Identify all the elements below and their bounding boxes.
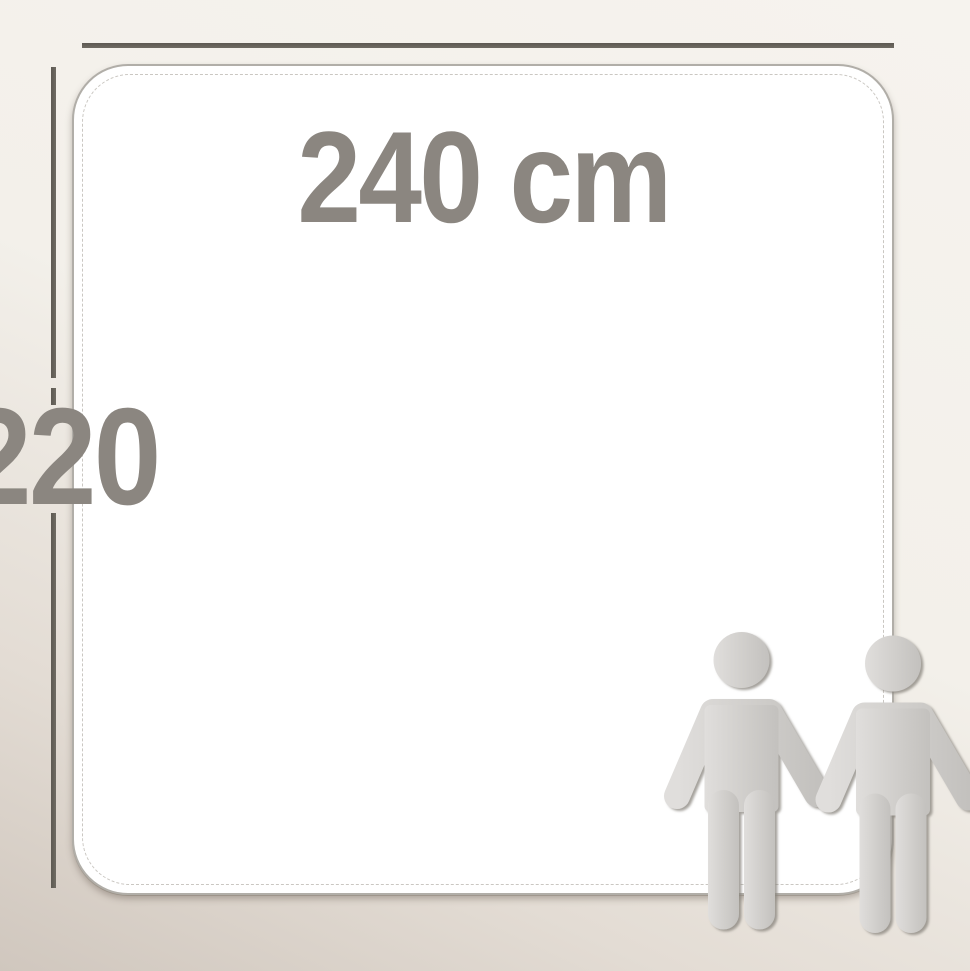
dimension-diagram: 240 cm 220	[0, 0, 970, 971]
scale-figures	[0, 0, 970, 971]
person-icon	[677, 632, 817, 930]
person-icon	[829, 636, 969, 934]
